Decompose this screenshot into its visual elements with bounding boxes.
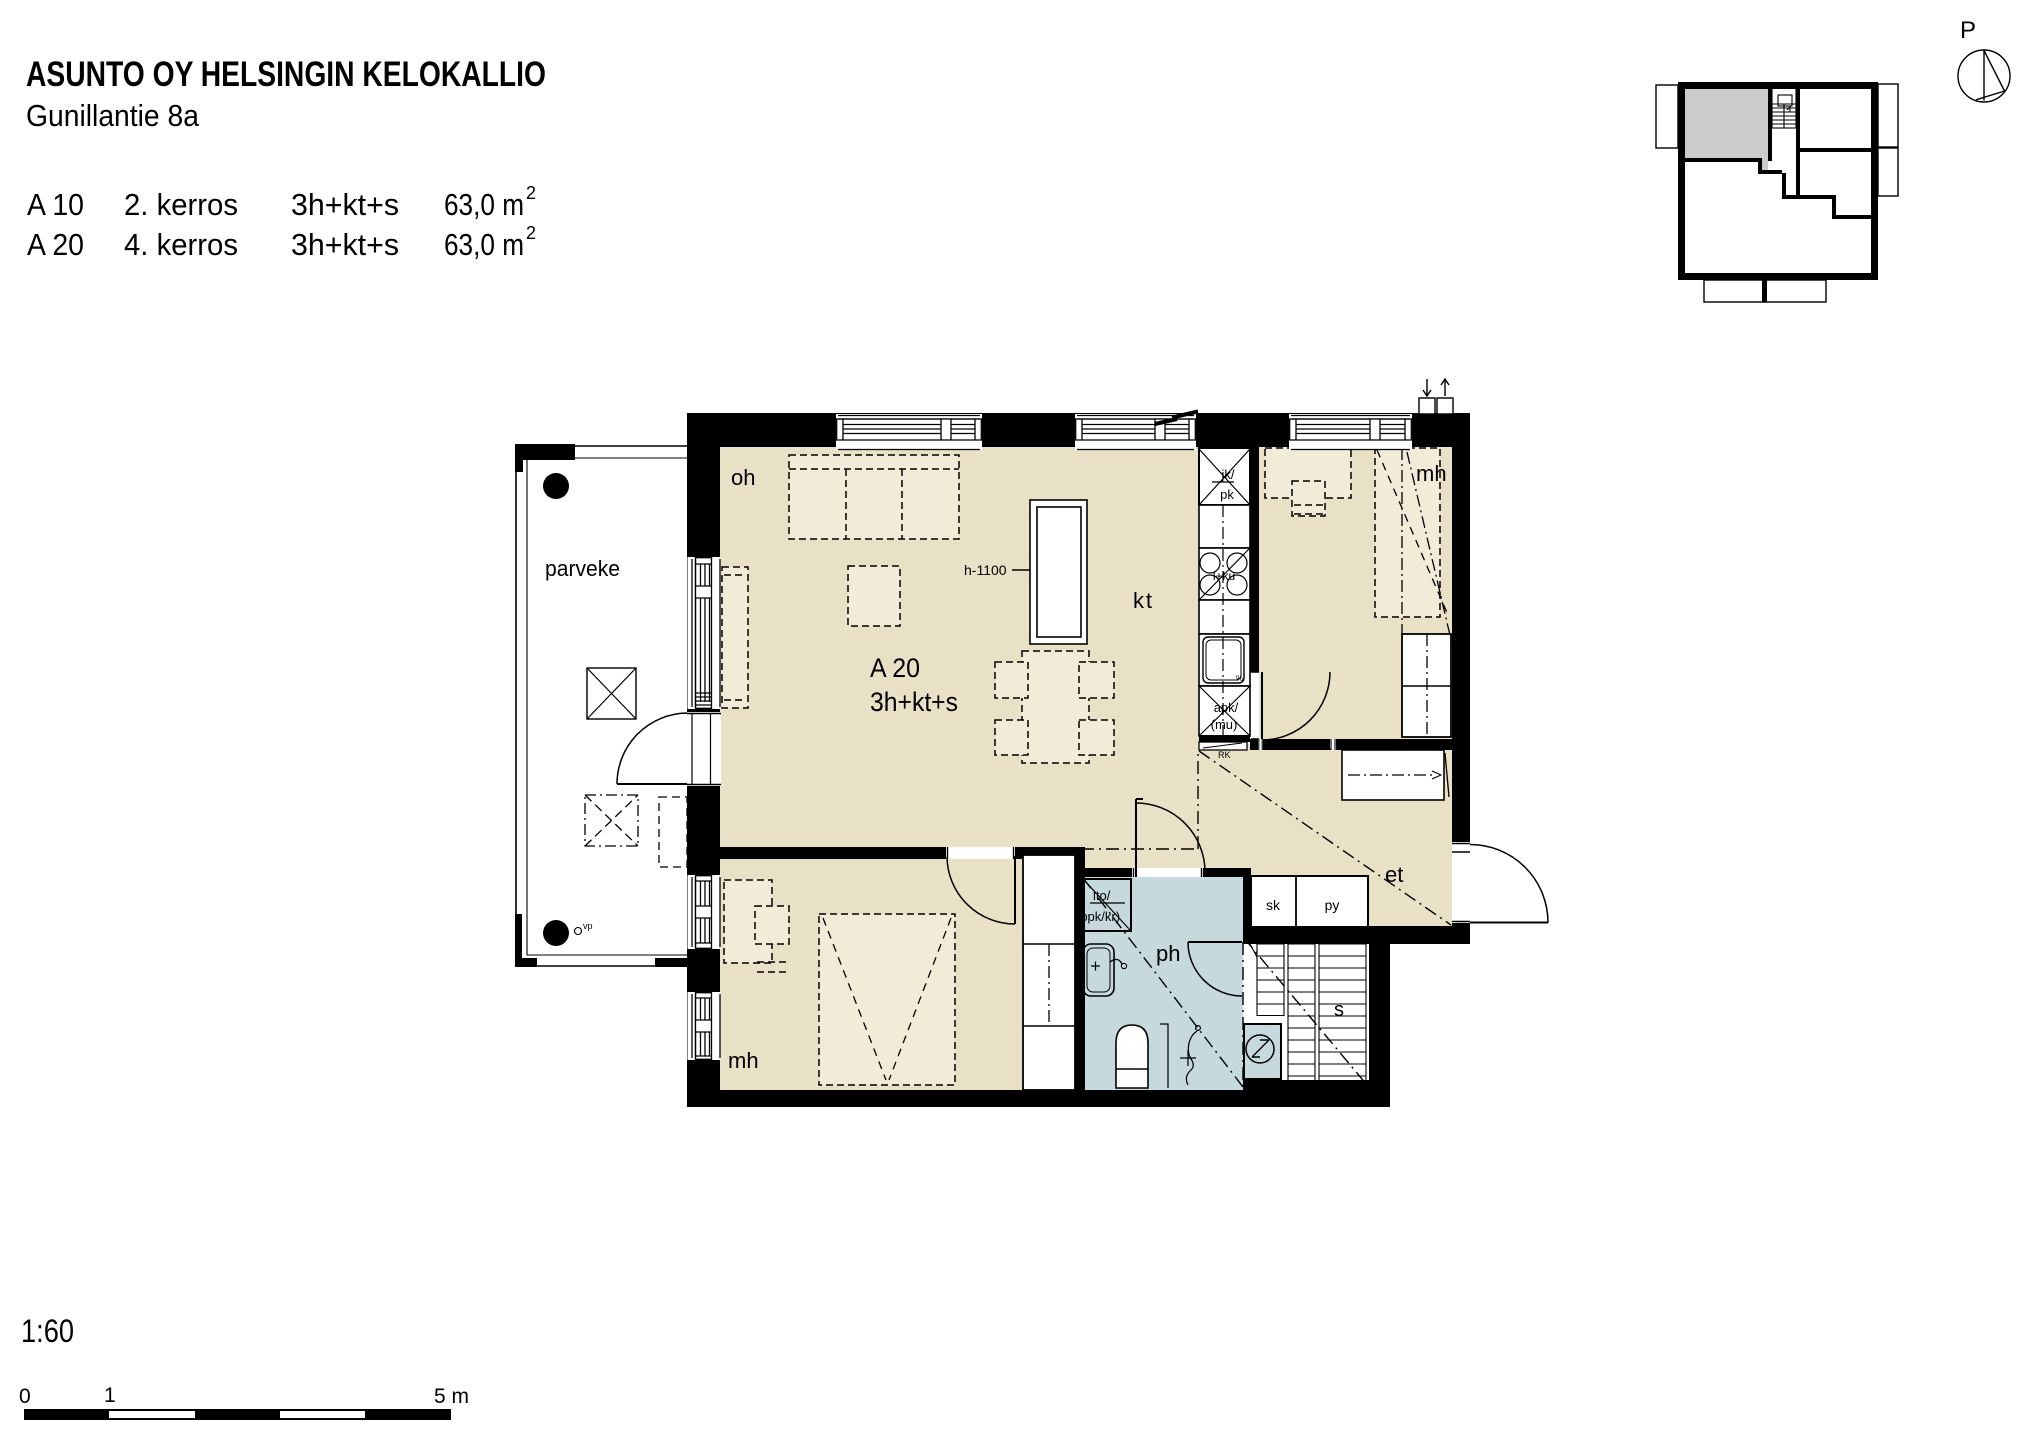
svg-text:RK: RK (1218, 750, 1231, 760)
svg-text:et: et (1385, 862, 1403, 887)
svg-text:ASUNTO OY HELSINGIN KELOKALLIO: ASUNTO OY HELSINGIN KELOKALLIO (26, 55, 546, 94)
svg-text:(ppk/kr): (ppk/kr) (1076, 909, 1120, 924)
svg-text:s: s (1334, 999, 1344, 1021)
svg-text:3h+kt+s: 3h+kt+s (291, 187, 399, 222)
svg-text:A 20: A 20 (870, 653, 920, 683)
svg-text:mh: mh (1416, 461, 1447, 486)
svg-text:63,0 m: 63,0 m (444, 187, 524, 222)
svg-text:vp: vp (583, 921, 593, 931)
svg-text:P: P (1960, 17, 1976, 44)
svg-text:%: % (1236, 674, 1243, 683)
svg-text:(mu): (mu) (1211, 717, 1238, 732)
svg-text:Gunillantie 8a: Gunillantie 8a (26, 98, 200, 133)
svg-text:lto/: lto/ (1093, 888, 1111, 903)
svg-text:63,0 m: 63,0 m (444, 227, 524, 262)
svg-text:2: 2 (526, 183, 536, 203)
svg-text:3h+kt+s: 3h+kt+s (870, 687, 958, 717)
svg-text:mh: mh (728, 1048, 759, 1073)
svg-text:kt: kt (1133, 588, 1152, 613)
svg-text:py: py (1325, 897, 1340, 913)
svg-text:3h+kt+s: 3h+kt+s (291, 227, 399, 262)
svg-text:ph: ph (1156, 941, 1180, 966)
svg-text:A 10: A 10 (27, 187, 84, 222)
svg-text:apk/: apk/ (1214, 700, 1239, 715)
svg-text:1: 1 (104, 1384, 116, 1407)
svg-text:oh: oh (731, 465, 755, 490)
svg-text:jk/: jk/ (1221, 467, 1235, 482)
svg-text:5 m: 5 m (434, 1385, 469, 1408)
svg-text:parveke: parveke (545, 556, 620, 581)
svg-text:2. kerros: 2. kerros (124, 187, 238, 222)
svg-text:1:60: 1:60 (21, 1313, 74, 1349)
svg-text:0: 0 (19, 1385, 31, 1408)
svg-text:sk: sk (1266, 897, 1281, 913)
svg-text:2: 2 (526, 223, 536, 243)
svg-text:4. kerros: 4. kerros (124, 227, 238, 262)
svg-text:l+ku: l+ku (1213, 569, 1235, 583)
svg-text:h-1100: h-1100 (964, 562, 1007, 578)
svg-text:pk: pk (1220, 487, 1234, 502)
svg-text:A 20: A 20 (27, 227, 84, 262)
